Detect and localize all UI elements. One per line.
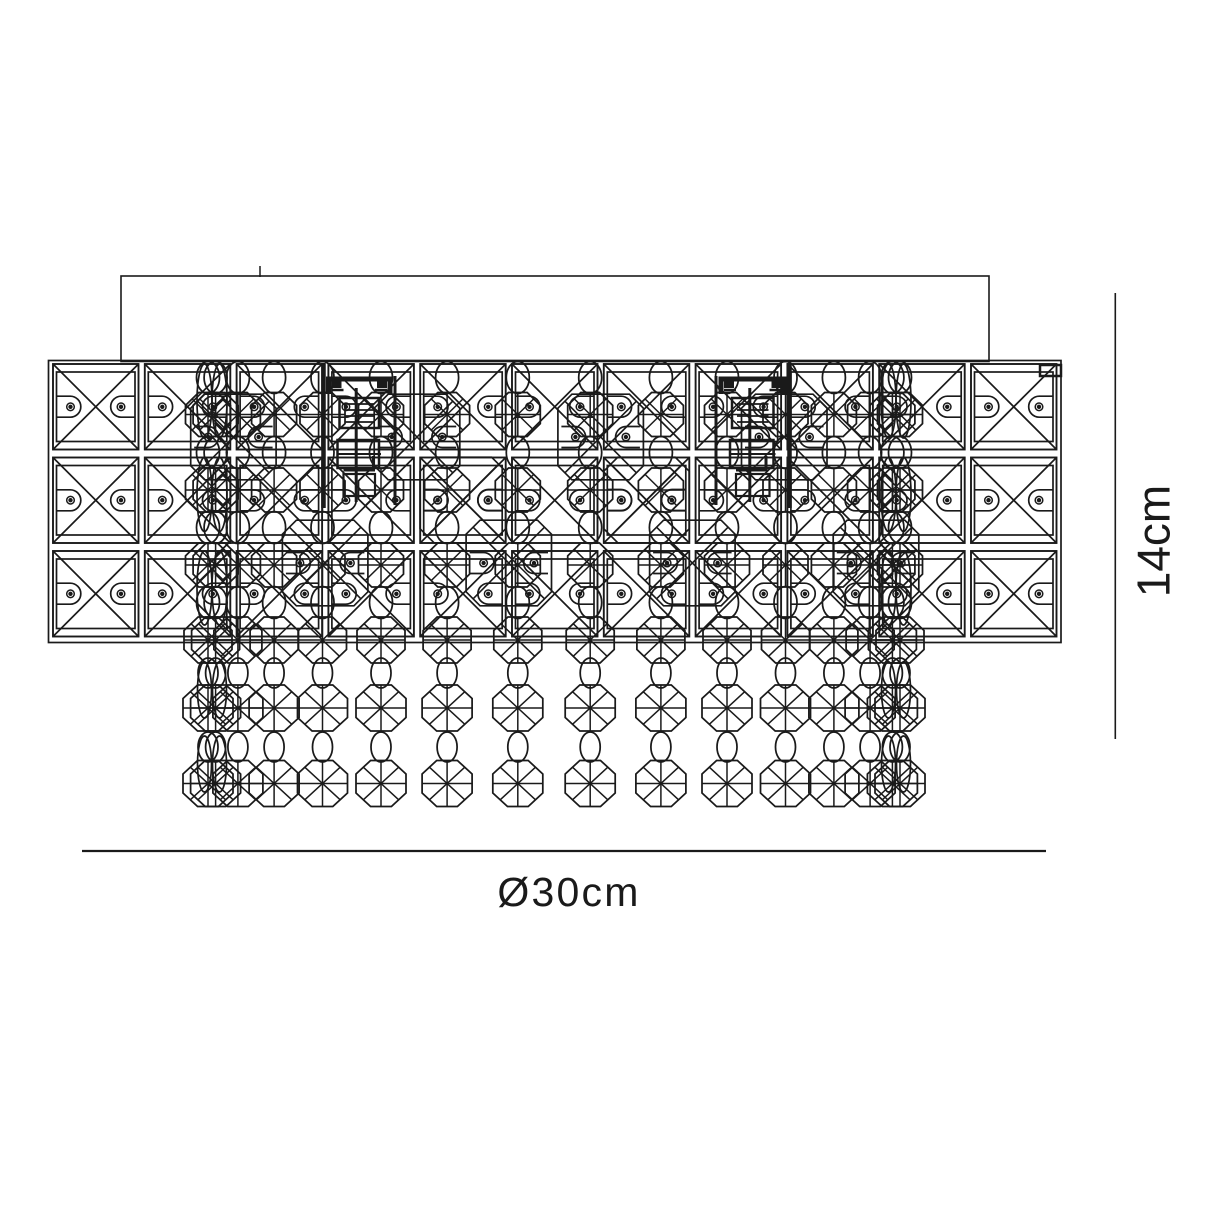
svg-text:14cm: 14cm	[1128, 485, 1180, 597]
svg-text:Ø30cm: Ø30cm	[497, 869, 640, 915]
